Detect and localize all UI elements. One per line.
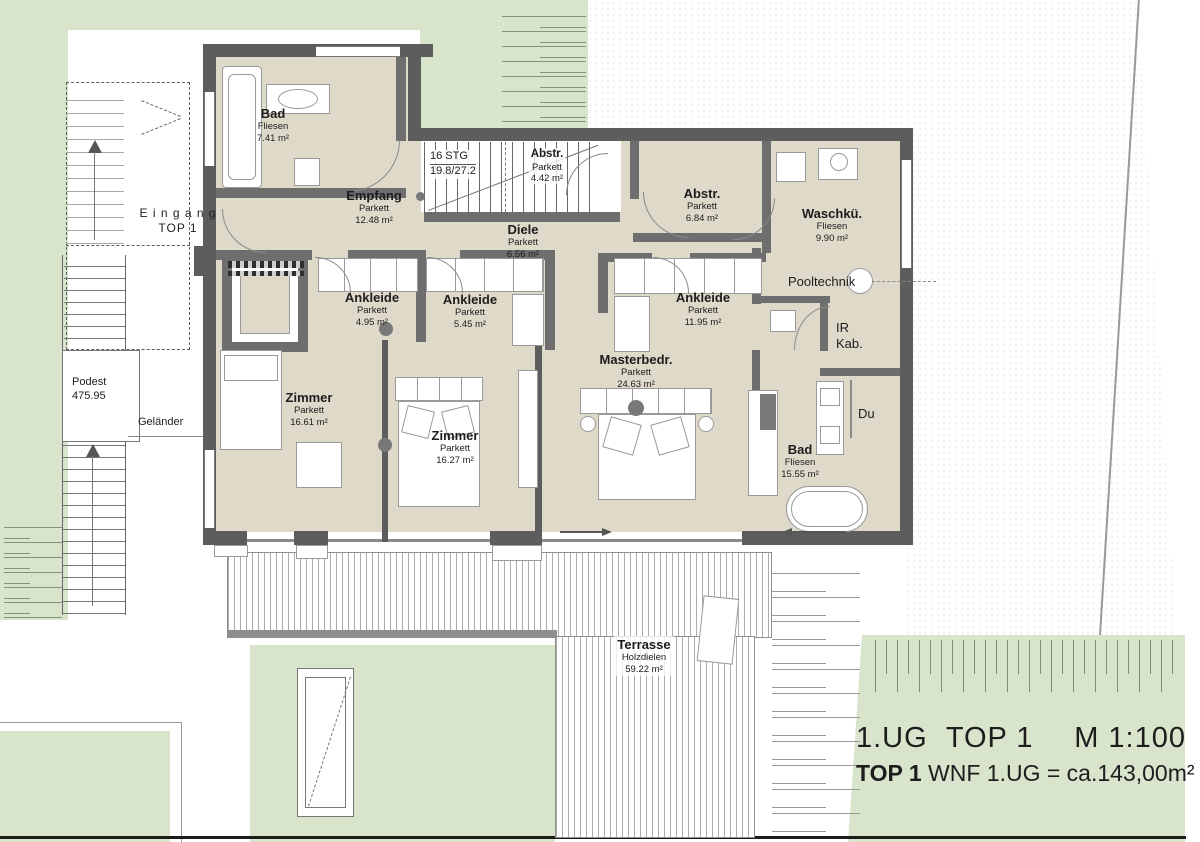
slider-arrow-1-shaft — [790, 531, 846, 533]
interior-stair-bottom-wall — [424, 212, 620, 222]
pier-2 — [294, 531, 328, 545]
wall-master-bad-divider — [752, 350, 760, 392]
vanity-2-sink-1 — [820, 388, 840, 406]
label-gelaender: Geländer — [138, 416, 183, 430]
grass-lines-pool-2 — [540, 18, 586, 118]
terrace-deck-upper — [227, 552, 772, 638]
room-label-abstr: Abstr.Parkett6.84 m² — [684, 186, 721, 224]
abstr-dash-divider — [505, 142, 506, 212]
stair-arrow-lower — [86, 444, 100, 457]
room-label-ankleide3: AnkleideParkett11.95 m² — [676, 290, 730, 328]
window-left-bad — [204, 92, 215, 166]
floor-plan-page: BadFliesen7.41 m² EmpfangParkett12.48 m²… — [0, 0, 1200, 842]
wall-ankleide3-left — [598, 253, 608, 313]
room-label-bad1: BadFliesen7.41 m² — [257, 106, 289, 144]
grass-ticks-2 — [886, 640, 1175, 674]
room-label-waschku: Waschkü.Fliesen9.90 m² — [802, 206, 862, 244]
window-right-waschku — [901, 160, 912, 268]
bathtub-2-inner — [791, 491, 863, 527]
label-pooltechnik: Pooltechnik — [788, 274, 855, 290]
stair-start-dot — [416, 192, 425, 201]
stair-arrow-upper — [88, 140, 102, 153]
label-ir: IRKab. — [836, 320, 863, 353]
title-line-1: 1.UG TOP 1 M 1:100 — [856, 722, 1186, 755]
bathtub-1-inner — [228, 74, 256, 180]
nightstand-right — [698, 416, 714, 432]
label-stairs: 16 STG 19.8/27.2 — [428, 150, 478, 179]
shaft-grill-1 — [228, 261, 304, 268]
shaft-inner — [240, 274, 290, 334]
wall-ankleide2-right — [545, 250, 555, 350]
exterior-stair-dash-line — [66, 245, 190, 246]
slope-lines-2 — [772, 578, 826, 832]
column-dot-3 — [628, 400, 644, 416]
gelaender-line — [128, 436, 204, 437]
pier-base-2 — [296, 545, 328, 559]
terrace-step-edge — [227, 630, 557, 638]
wall-abstr-left — [630, 141, 639, 199]
slider-arrow-1-head — [782, 528, 792, 536]
room-label-abstr-small: Abstr.Parkett4.42 m² — [529, 148, 566, 184]
pier-4 — [742, 531, 913, 545]
room-label-diele: DieleParkett6.56 m² — [507, 222, 539, 260]
room-label-bad2: BadFliesen15.55 m² — [781, 442, 819, 480]
wc-1 — [294, 158, 320, 186]
wall-wing-right — [408, 44, 421, 141]
stair-arrow-lower-shaft — [92, 456, 93, 606]
label-eingang: E i n g a n g TOP 1 — [139, 206, 216, 236]
shaft-grill-2 — [228, 271, 304, 276]
nightstand-left — [580, 416, 596, 432]
room-label-empfang: EmpfangParkett12.48 m² — [346, 188, 402, 226]
pier-base-1 — [214, 545, 248, 557]
label-podest: Podest 475.95 — [72, 376, 106, 404]
wall-wc-top — [752, 296, 830, 303]
room-label-ankleide2: AnkleideParkett5.45 m² — [443, 292, 497, 330]
column-dot-2 — [378, 438, 392, 452]
room-label-zimmer2: ZimmerParkett16.27 m² — [432, 428, 479, 466]
washer-drum — [830, 153, 848, 171]
sun-lounger — [697, 595, 740, 664]
stair-mid-flight — [64, 255, 125, 351]
grass-lines-left-2 — [4, 532, 30, 614]
slider-arrow-2-head — [602, 528, 612, 536]
wall-bad1-right — [396, 57, 406, 141]
wall-nub-left — [194, 246, 206, 276]
pier-base-3 — [492, 545, 542, 561]
light-shaft-inner — [305, 677, 346, 808]
bed-master-headboard — [580, 388, 712, 414]
closet-col-a2 — [512, 294, 544, 346]
lower-garden — [0, 731, 170, 842]
slider-arrow-2-shaft — [560, 531, 604, 533]
wc-2 — [770, 310, 796, 332]
stair-lower-flight — [62, 442, 125, 614]
window-left-zimmer — [204, 450, 215, 528]
window-top-bad — [316, 46, 400, 57]
vanity-2-sink-2 — [820, 426, 840, 444]
stair-upper-flight — [66, 88, 124, 244]
shower-partition — [850, 380, 852, 438]
terrace-garden — [250, 645, 555, 842]
pooltechnik-dash-line — [872, 281, 936, 282]
wall-ir-bottom — [820, 368, 900, 376]
room-label-zimmer1: ZimmerParkett16.61 m² — [286, 390, 333, 428]
room-label-master: Masterbedr.Parkett24.63 m² — [600, 352, 673, 390]
wardrobe-zimmer2 — [518, 370, 538, 488]
closet-col-a3 — [614, 296, 650, 352]
tv-panel — [760, 394, 776, 430]
bed-zimmer1-pillow — [224, 355, 278, 381]
room-label-ankleide1: AnkleideParkett4.95 m² — [345, 290, 399, 328]
wall-top-main — [408, 128, 913, 141]
title-scale: M 1:100 — [1074, 722, 1186, 755]
title-line-2: TOP 1 WNF 1.UG = ca.143,00m² — [856, 760, 1196, 787]
room-label-terrasse: TerrasseHolzdielen59.22 m² — [614, 636, 673, 676]
title-floor-unit: 1.UG TOP 1 — [856, 722, 1034, 755]
label-du: Du — [858, 406, 875, 422]
stair-arrow-upper-shaft — [94, 152, 95, 240]
table-zimmer1 — [296, 442, 342, 488]
waschku-box — [776, 152, 806, 182]
pier-1 — [203, 531, 247, 545]
bed-zimmer2-headboard — [395, 377, 483, 401]
